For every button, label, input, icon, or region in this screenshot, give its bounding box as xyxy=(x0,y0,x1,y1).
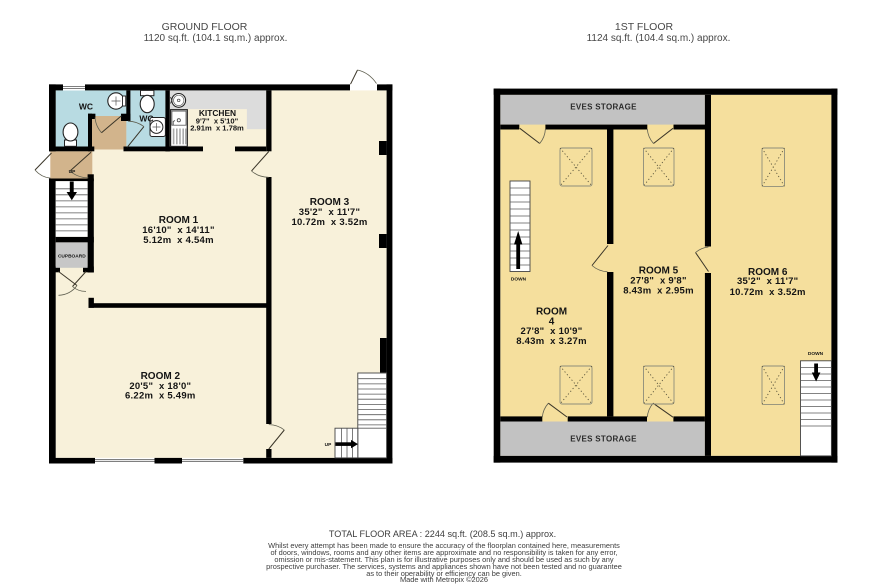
svg-text:1124 sq.ft. (104.4 sq.m.) appr: 1124 sq.ft. (104.4 sq.m.) approx. xyxy=(587,33,731,44)
svg-text:TOTAL FLOOR AREA : 2244 sq.ft.: TOTAL FLOOR AREA : 2244 sq.ft. (208.5 sq… xyxy=(329,529,556,539)
svg-text:WC: WC xyxy=(79,102,93,112)
svg-text:8.43m x 2.95m: 8.43m x 2.95m xyxy=(623,285,694,296)
svg-text:1ST FLOOR: 1ST FLOOR xyxy=(615,21,674,33)
svg-text:EVES STORAGE: EVES STORAGE xyxy=(570,103,637,112)
svg-text:DOWN: DOWN xyxy=(808,351,824,357)
svg-text:10.72m x 3.52m: 10.72m x 3.52m xyxy=(730,287,806,298)
svg-text:2.91m x 1.78m: 2.91m x 1.78m xyxy=(190,123,244,132)
svg-text:8.43m x 3.27m: 8.43m x 3.27m xyxy=(516,336,587,347)
svg-text:1120 sq.ft. (104.1 sq.m.) appr: 1120 sq.ft. (104.1 sq.m.) approx. xyxy=(144,33,288,44)
svg-text:UP: UP xyxy=(69,169,76,175)
svg-text:DOWN: DOWN xyxy=(511,277,527,283)
svg-text:Made with Metropix ©2026: Made with Metropix ©2026 xyxy=(400,575,488,584)
svg-text:5.12m x 4.54m: 5.12m x 4.54m xyxy=(143,235,214,246)
svg-text:WC: WC xyxy=(139,114,153,124)
svg-text:6.22m x 5.49m: 6.22m x 5.49m xyxy=(125,391,196,402)
svg-text:35'2" x 11'7": 35'2" x 11'7" xyxy=(737,276,798,287)
svg-text:UP: UP xyxy=(325,442,332,448)
svg-text:10.72m x 3.52m: 10.72m x 3.52m xyxy=(291,217,367,228)
svg-text:EVES STORAGE: EVES STORAGE xyxy=(570,435,637,444)
svg-text:GROUND FLOOR: GROUND FLOOR xyxy=(162,21,248,33)
svg-text:CUPBOARD: CUPBOARD xyxy=(58,253,86,259)
